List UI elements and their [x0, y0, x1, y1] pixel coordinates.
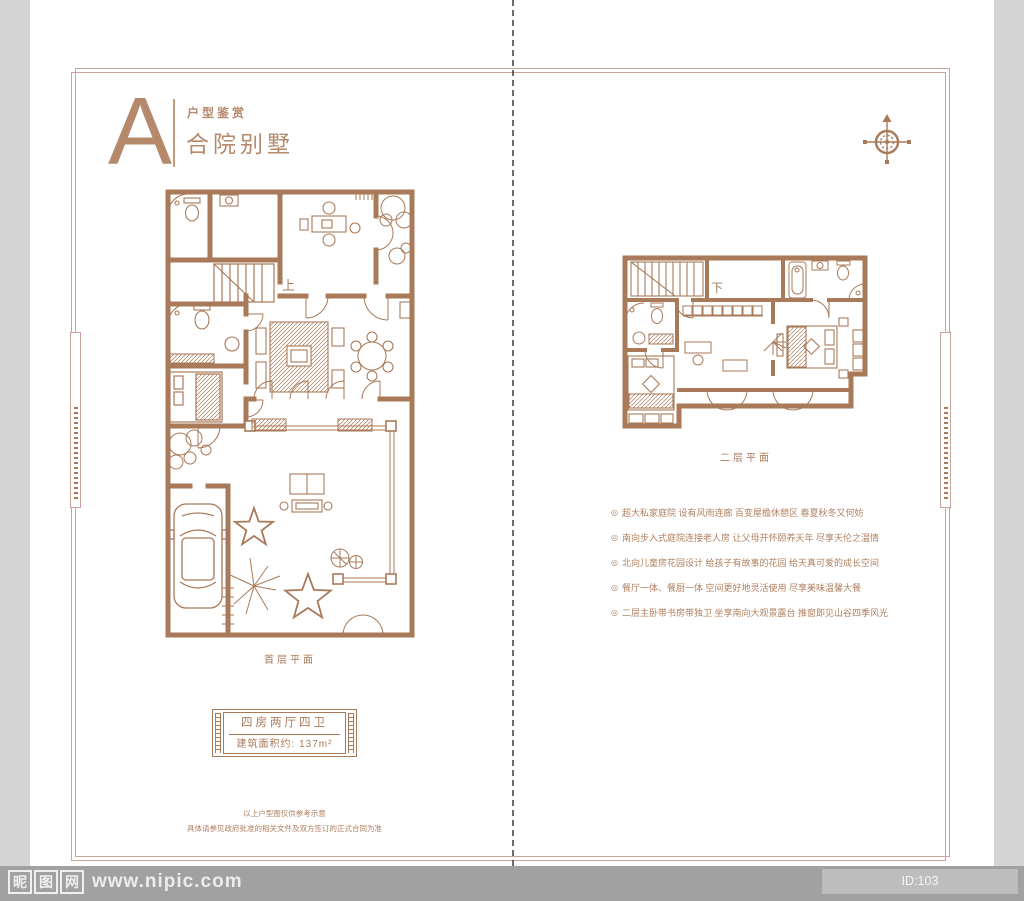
center-fold-line: [512, 0, 514, 866]
side-ornament-left: [70, 332, 81, 508]
bed-icon: [777, 318, 863, 378]
floor-plan-first: 上: [150, 186, 430, 644]
tree-icon: [380, 196, 412, 264]
spec-box-ornament-right: [348, 713, 354, 753]
desk-icon: [300, 202, 360, 246]
compass-icon: [857, 112, 917, 172]
disclaimer: 以上户型图仅供参考示意 具体请参见政府批准的相关文件及双方签订的正式合同为准: [152, 809, 417, 833]
feature-item: ◎ 南向步入式庭院连接老人房 让父母开怀颐养天年 尽享天伦之温情: [611, 532, 911, 544]
feature-list: ◎ 超大私家庭院 设有风雨连廊 百变屋檐休憩区 春夏秋冬又何妨 ◎ 南向步入式庭…: [611, 507, 911, 632]
inner-walls: [625, 258, 865, 390]
bathroom-icon: [168, 194, 238, 221]
bed-icon: [628, 356, 674, 423]
bathroom-icon: [625, 303, 673, 344]
page-title: 合院别墅: [186, 125, 294, 159]
bed-icon: [170, 372, 222, 422]
disclaimer-line-1: 以上户型图仅供参考示意: [152, 809, 417, 818]
bathtub-icon: [789, 261, 865, 300]
feature-text: 北向儿童房花园设计 给孩子有故事的花园 给天真可爱的成长空间: [622, 557, 879, 569]
spec-box-ornament-left: [215, 713, 221, 753]
pergola: [245, 419, 396, 584]
bullet-icon: ◎: [611, 582, 618, 594]
feature-text: 超大私家庭院 设有风雨连廊 百变屋檐休憩区 春夏秋冬又何妨: [622, 507, 864, 519]
feature-text: 餐厅一体、餐厨一体 空间更好地灵活使用 尽享美味温馨大餐: [622, 582, 861, 594]
stairs-icon: [631, 262, 703, 296]
bullet-icon: ◎: [611, 532, 618, 544]
watermark-bar: 昵 图 网 www.nipic.com ID:103 NO:2020050616…: [0, 866, 1024, 901]
bullet-icon: ◎: [611, 507, 618, 519]
bathroom-icon: [168, 304, 239, 363]
feature-item: ◎ 二层主卧带书房带独卫 坐享南向大观景露台 推窗即见山谷四季风光: [611, 607, 911, 619]
bench-icon: [280, 474, 332, 512]
disclaimer-line-2: 具体请参见政府批准的相关文件及双方签订的正式合同为准: [152, 824, 417, 833]
car-icon: [169, 504, 227, 608]
stair-up-label: 上: [282, 278, 295, 293]
first-floor-label: 首层平面: [150, 651, 430, 666]
image-id-badge: ID:103 NO:20200506165835175081: [822, 869, 1018, 894]
spec-box-inner: 四房两厅四卫 建筑面积约: 137m²: [223, 712, 346, 754]
ornament-marks: [74, 407, 78, 499]
spec-box: 四房两厅四卫 建筑面积约: 137m²: [212, 709, 357, 757]
feature-item: ◎ 超大私家庭院 设有风雨连廊 百变屋檐休憩区 春夏秋冬又何妨: [611, 507, 911, 519]
logo-char: 昵: [8, 870, 32, 894]
bullet-icon: ◎: [611, 607, 618, 619]
title-divider: [173, 99, 175, 167]
feature-text: 南向步入式庭院连接老人房 让父母开怀颐养天年 尽享天伦之温情: [622, 532, 879, 544]
ornament-marks: [944, 407, 948, 499]
site-logo: 昵 图 网 www.nipic.com: [8, 870, 243, 894]
area-label: 建筑面积约: 137m²: [224, 735, 345, 755]
floor-plan-second: 下: [615, 250, 877, 440]
logo-char: 图: [34, 870, 58, 894]
dining-table-icon: [351, 302, 410, 381]
wardrobe-icon: [683, 306, 763, 371]
site-url: www.nipic.com: [92, 871, 243, 893]
feature-item: ◎ 北向儿童房花园设计 给孩子有故事的花园 给天真可爱的成长空间: [611, 557, 911, 569]
page-subtitle: 户型鉴赏: [187, 104, 247, 121]
feature-item: ◎ 餐厅一体、餐厨一体 空间更好地灵活使用 尽享美味温馨大餐: [611, 582, 911, 594]
page-title-letter: A: [108, 84, 172, 180]
logo-char: 网: [60, 870, 84, 894]
second-floor-label: 二层平面: [615, 449, 877, 464]
feature-text: 二层主卧带书房带独卫 坐享南向大观景露台 推窗即见山谷四季风光: [622, 607, 888, 619]
stair-down-label: 下: [711, 281, 723, 295]
brochure-canvas: A 户型鉴赏 合院别墅: [0, 0, 1024, 901]
bullet-icon: ◎: [611, 557, 618, 569]
side-ornament-right: [940, 332, 951, 508]
room-count-label: 四房两厅四卫: [224, 713, 345, 734]
